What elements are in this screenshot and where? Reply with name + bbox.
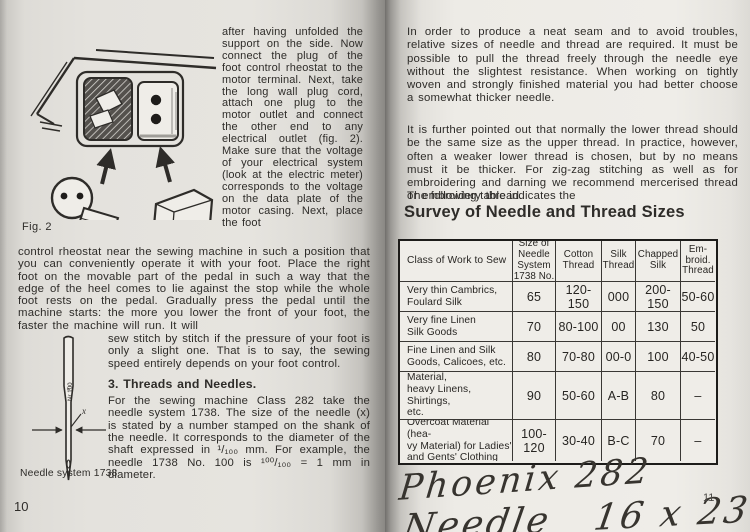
table-cell: 80: [636, 372, 681, 420]
table-cell: 80: [513, 342, 556, 372]
table-cell: 00-0: [602, 342, 636, 372]
table-cell: 90: [513, 372, 556, 420]
needle-thread-table: Class of Work to Sew Size of Needle Syst…: [398, 239, 718, 465]
book-scan: Fig. 2 after having unfolded the support…: [0, 0, 750, 532]
col-header-class: Class of Work to Sew: [400, 241, 513, 282]
table-cell: 70: [513, 312, 556, 342]
table-cell: 70-80: [556, 342, 602, 372]
needle-system-paragraph: For the sewing machine Class 282 take th…: [108, 395, 370, 481]
needle-shank-size-text: Nr 100: [67, 382, 74, 401]
table-cell: 30-40: [556, 420, 602, 461]
right-page: In order to produce a neat seam and to a…: [385, 0, 750, 532]
table-cell: 00: [602, 312, 636, 342]
sewing-machine-plug-diagram-icon: [10, 12, 222, 220]
table-cell: 100: [636, 342, 681, 372]
page-number-10: 10: [14, 499, 28, 514]
table-cell: Very thin Cambrics, Foulard Silk: [400, 282, 513, 312]
table-cell: Ladies' Dress Material, heavy Linens, Sh…: [400, 372, 513, 420]
col-header-silk: Silk Thread: [602, 241, 636, 282]
handwritten-note-line2: Needle 16 x 231: [400, 488, 750, 532]
table-cell: 80-100: [556, 312, 602, 342]
table-cell: 40-50: [681, 342, 715, 372]
threads-needles-section: sew stitch by stitch if the pressure of …: [108, 333, 370, 481]
table-cell: 50-60: [556, 372, 602, 420]
fig2-caption: Fig. 2: [22, 221, 52, 233]
table-cell: 65: [513, 282, 556, 312]
pedal-paragraph: control rheostat near the sewing machine…: [18, 246, 370, 332]
fig2-illustration: [10, 12, 222, 220]
table-cell: 130: [636, 312, 681, 342]
table-cell: B-C: [602, 420, 636, 461]
table-cell: 50: [681, 312, 715, 342]
table-cell: 200-150: [636, 282, 681, 312]
table-cell: 000: [602, 282, 636, 312]
table-cell: Overcoat Material (hea- vy Material) for…: [400, 420, 513, 461]
section-heading: 3. Threads and Needles.: [108, 378, 370, 390]
table-title: Survey of Needle and Thread Sizes: [404, 203, 685, 222]
table-cell: –: [681, 420, 715, 461]
table-cell: 50-60: [681, 282, 715, 312]
col-header-cotton: Cotton Thread: [556, 241, 602, 282]
col-header-embroid: Em- broid. Thread: [681, 241, 715, 282]
speed-paragraph: sew stitch by stitch if the pressure of …: [108, 333, 370, 370]
needle-illustration: Nr 100 x: [26, 334, 112, 484]
seam-paragraph: In order to produce a neat seam and to a…: [407, 26, 738, 106]
table-cell: Very fine Linen Silk Goods: [400, 312, 513, 342]
table-cell: 120-150: [556, 282, 602, 312]
left-column-paragraph: after having unfolded the support on the…: [222, 27, 363, 229]
col-header-needle-size: Size of Needle System 1738 No.: [513, 241, 556, 282]
table-cell: –: [681, 372, 715, 420]
table-cell: A-B: [602, 372, 636, 420]
needle-x-label: x: [81, 406, 86, 416]
left-page: Fig. 2 after having unfolded the support…: [0, 0, 385, 532]
page-number-11: 11: [703, 492, 714, 504]
table-cell: Fine Linen and Silk Goods, Calicoes, etc…: [400, 342, 513, 372]
table-intro: The following table indicates the: [407, 190, 576, 202]
needle-caption: Needle system 1738: [20, 468, 117, 479]
table-cell: 100-120: [513, 420, 556, 461]
table-cell: 70: [636, 420, 681, 461]
col-header-chapped: Chapped Silk: [636, 241, 681, 282]
needle-diagram-icon: Nr 100 x: [26, 334, 112, 484]
